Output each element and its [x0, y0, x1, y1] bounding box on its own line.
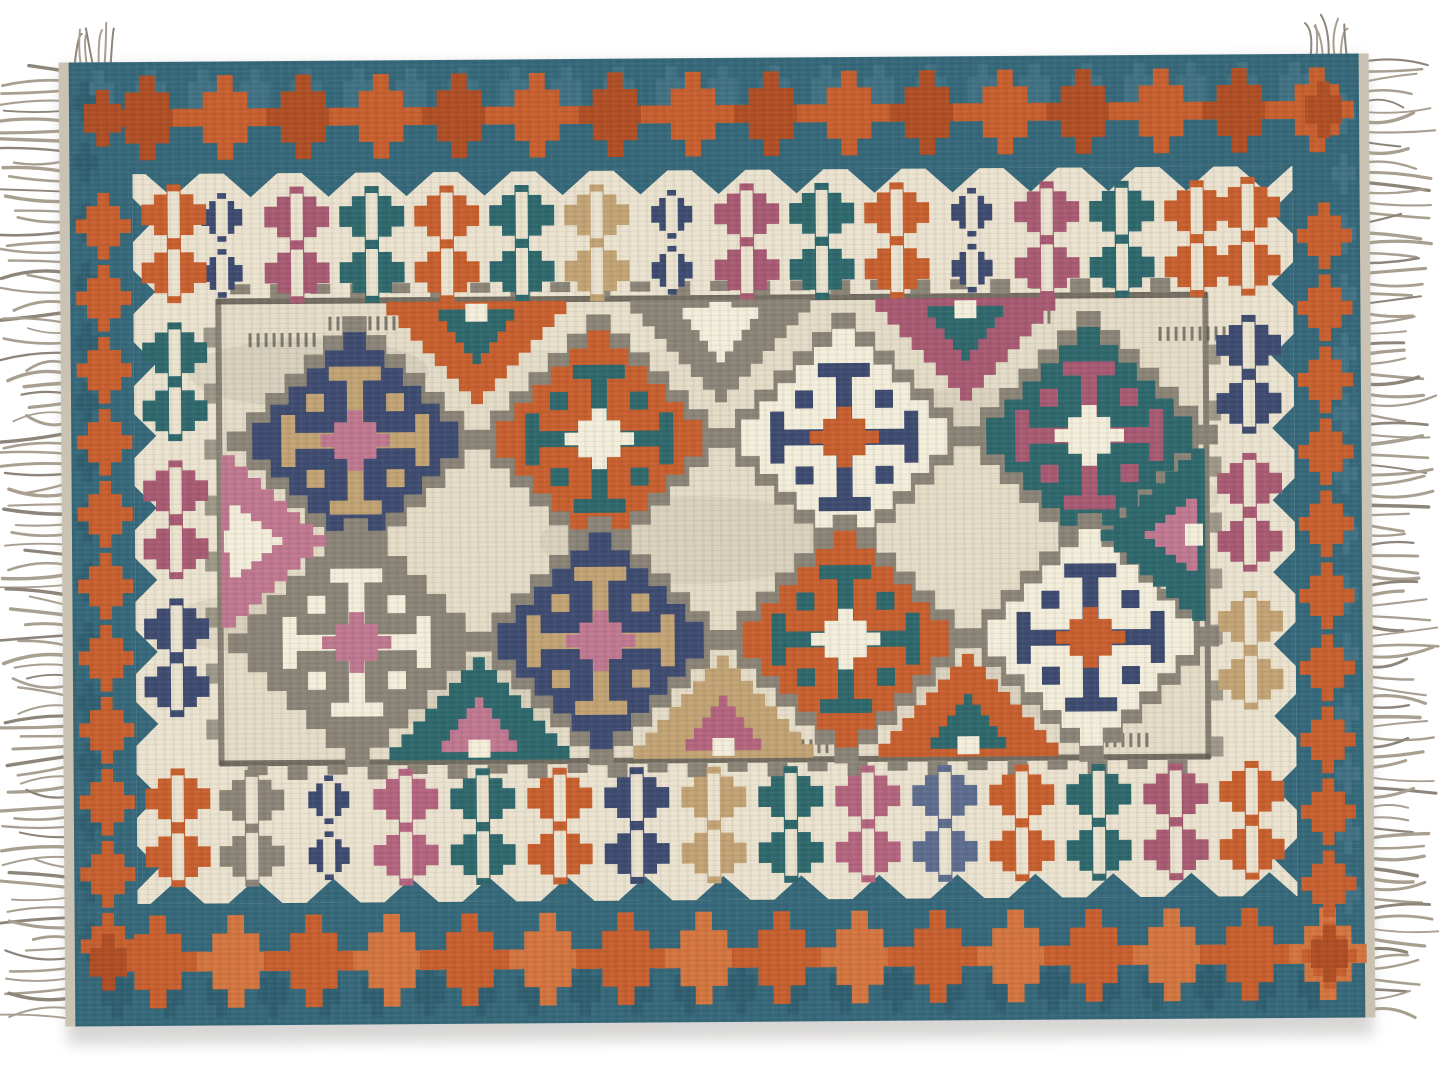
fringe-strand — [1366, 283, 1422, 286]
fringe-strand — [18, 766, 68, 775]
fringe-strand — [5, 473, 66, 476]
fringe-strand — [1367, 377, 1419, 385]
fringe-strand — [7, 242, 64, 246]
fringe-strand — [0, 434, 65, 443]
fringe-strand — [1370, 805, 1408, 808]
fringe-strand — [0, 148, 63, 152]
fringe-strand — [29, 65, 63, 70]
fringe-strand — [16, 524, 66, 525]
fringe-strand — [0, 463, 65, 466]
rug-rotated-group — [0, 14, 1441, 1045]
fringe-strand — [29, 403, 65, 407]
fringe-strand — [79, 29, 81, 64]
fringe-strand — [1366, 241, 1431, 244]
fringe-strand — [1371, 1008, 1415, 1018]
fringe-strand — [104, 23, 106, 64]
fringe-strand — [0, 452, 65, 455]
fringe-strand — [1371, 960, 1418, 969]
fringe-strand — [1370, 834, 1429, 838]
fringe-strand — [0, 585, 66, 588]
fringe-strand — [1367, 454, 1428, 458]
fringe-strand — [1365, 172, 1431, 179]
fringe-strand — [1367, 423, 1427, 425]
fringe-strand — [0, 248, 64, 254]
fringe-strand — [1367, 414, 1405, 421]
fringe-strand — [6, 196, 64, 202]
fringe-strand — [12, 898, 69, 901]
fringe-strand — [33, 937, 68, 940]
fringe-strand — [2, 857, 68, 865]
fringe-strand — [8, 787, 68, 793]
fringe-strand — [1365, 108, 1430, 113]
fringe-strand — [1368, 542, 1413, 546]
fringe-strand — [4, 110, 63, 112]
fringe-strand — [1369, 695, 1425, 703]
fringe-strand — [1369, 659, 1407, 667]
fringe-strand — [5, 544, 66, 546]
fringe-strand — [14, 161, 63, 164]
fringe-strand — [0, 286, 64, 293]
fringe-strand — [15, 210, 64, 212]
fringe-strand — [5, 950, 68, 960]
fringe-strand — [30, 596, 67, 605]
fringe-strand — [1367, 358, 1405, 364]
fringe-strand — [1366, 296, 1421, 303]
fringe-strand — [1370, 846, 1424, 848]
fringe-strand — [1370, 856, 1424, 860]
fringe-strand — [1367, 350, 1404, 354]
fringe-strand — [0, 189, 64, 192]
fringe-strand — [1368, 565, 1418, 573]
fringe-strand — [1366, 293, 1411, 296]
fringe-strand — [9, 176, 63, 182]
fringe-strand — [27, 415, 66, 425]
fringe-strand — [1365, 59, 1428, 65]
fringe-strand — [1368, 476, 1425, 485]
fringe-strand — [28, 328, 65, 333]
fringe-strand — [18, 705, 67, 714]
fringe-strand — [4, 338, 65, 344]
fringe-strand — [1368, 575, 1419, 579]
fringe-strand — [1365, 142, 1400, 147]
fringe-strand — [1369, 716, 1420, 717]
fringe-strand — [2, 847, 69, 851]
fringe-strand — [0, 119, 63, 122]
fringe-strand — [1369, 626, 1403, 631]
fringe-strand — [20, 832, 68, 837]
fringe-strand — [15, 664, 67, 668]
fringe-strand — [1365, 149, 1408, 154]
fringe-strand — [25, 623, 66, 625]
fringe-strand — [0, 131, 63, 133]
fringe-strand — [2, 575, 66, 579]
fringe-strand — [15, 817, 68, 820]
fringe-strand — [25, 550, 66, 555]
fringe-strand — [1369, 686, 1426, 695]
fringe-strand — [2, 80, 62, 85]
fringe-strand — [9, 260, 64, 262]
fringe-strand — [1366, 258, 1419, 263]
fringe-strand — [1368, 514, 1409, 516]
fringe-strand — [1367, 331, 1406, 334]
fringe-strand — [1368, 591, 1403, 596]
fringe-strand — [1371, 916, 1432, 920]
fringe-strand — [1369, 721, 1427, 727]
fringe-strand — [18, 217, 64, 222]
fringe-strand — [1371, 979, 1419, 985]
fringe-strand — [1368, 469, 1433, 475]
fringe-strand — [7, 756, 67, 765]
fringe-strand — [13, 412, 65, 421]
fringe-strand — [1333, 19, 1338, 56]
weave-texture-ribs — [69, 54, 1366, 1027]
fringe-strand — [1371, 948, 1407, 952]
fringe-strand — [21, 776, 68, 784]
fringe-strand — [1368, 534, 1405, 536]
fringe-strand — [1368, 505, 1429, 508]
fringe-strand — [1370, 777, 1434, 782]
fringe-strand — [1370, 868, 1417, 876]
photo-canvas — [0, 0, 1445, 1084]
fringe-strand — [0, 232, 64, 235]
fringe-strand — [1367, 394, 1424, 397]
fringe-strand — [1369, 647, 1433, 657]
fringe-strand — [18, 641, 66, 646]
fringe-strand — [1366, 313, 1412, 316]
fringe-strand — [1371, 904, 1430, 909]
fringe-strand — [1370, 878, 1413, 882]
fringe-strand — [1365, 90, 1412, 94]
fringe-strand — [7, 907, 68, 912]
fringe-strand — [1366, 202, 1431, 206]
fringe-strand — [1305, 23, 1312, 56]
fringe-strand — [1369, 676, 1413, 679]
fringe-strand — [1366, 253, 1417, 258]
fringe-strand — [34, 859, 68, 868]
fringe-strand — [1369, 752, 1423, 758]
fringe-strand — [8, 371, 65, 380]
fringe-strand — [85, 35, 87, 65]
fringe-strand — [8, 504, 65, 505]
fringe-strand — [3, 167, 63, 172]
fringe-strand — [1368, 525, 1404, 531]
fringe-strand — [9, 872, 68, 878]
fringe-strand — [1365, 100, 1403, 108]
fringe-strand — [1, 271, 64, 279]
fringe-strand — [12, 532, 66, 536]
fringe-strand — [0, 138, 63, 141]
fringe-strand — [1365, 130, 1435, 132]
fringe-strand — [1371, 898, 1422, 903]
fringe-strand — [14, 301, 64, 310]
fringe-strand — [1370, 760, 1406, 767]
fringe-strand — [1365, 113, 1414, 123]
fringe-strand — [1368, 599, 1426, 606]
fringe-strand — [1367, 343, 1404, 344]
fringe-strand — [1371, 928, 1439, 932]
fringe-strand — [1368, 491, 1433, 497]
fringe-strand — [1370, 817, 1408, 820]
fringe-strand — [0, 726, 67, 728]
fringe-strand — [6, 588, 66, 595]
fringe-strand — [1371, 938, 1425, 946]
fringe-strand — [0, 881, 68, 888]
fringe-strand — [13, 746, 67, 749]
fringe-strand — [27, 361, 65, 371]
fringe-strand — [1369, 616, 1431, 621]
fringe-strand — [6, 978, 69, 981]
fringe-strand — [4, 654, 67, 663]
fringe-strand — [1369, 705, 1409, 708]
fringe-strand — [1371, 991, 1410, 999]
fringe-strand — [98, 30, 102, 64]
fringe-strand — [1366, 233, 1421, 240]
fringe-strand — [1365, 161, 1416, 169]
fringe-strand — [4, 509, 66, 515]
fringe-strand — [28, 275, 65, 283]
fringe-strand — [1365, 69, 1422, 72]
fringe-strand — [0, 353, 65, 361]
fringe-strand — [1371, 989, 1407, 992]
fringe-strand — [26, 948, 69, 951]
fringe-strand — [1365, 74, 1417, 82]
fringe-strand — [0, 100, 63, 105]
fringe-strand — [8, 563, 66, 570]
fringe-strand — [1370, 828, 1413, 833]
fringe-strand — [1369, 645, 1439, 647]
fringe-strand — [5, 716, 67, 723]
fringe-strand — [1368, 581, 1417, 586]
fringe-strand — [1368, 555, 1418, 556]
fringe-strand — [2, 91, 63, 94]
fringe-strand — [1371, 955, 1408, 959]
fringe-strand — [110, 29, 114, 65]
fringe-strand — [1366, 268, 1425, 273]
fringe-strand — [10, 968, 69, 971]
fringe-strand — [5, 988, 69, 994]
fringe-strand — [4, 443, 66, 448]
fringe-strand — [21, 392, 65, 395]
fringe-strand — [9, 921, 68, 929]
fringe-strand — [11, 609, 67, 616]
fringe-strand — [27, 675, 67, 679]
fringe-strand — [25, 484, 66, 493]
kilim-rug-photo — [0, 0, 1445, 1084]
fringe-strand — [2, 826, 68, 829]
fringe-strand — [24, 383, 65, 387]
fringe-strand — [1, 807, 68, 811]
fringe-strand — [1366, 189, 1425, 193]
